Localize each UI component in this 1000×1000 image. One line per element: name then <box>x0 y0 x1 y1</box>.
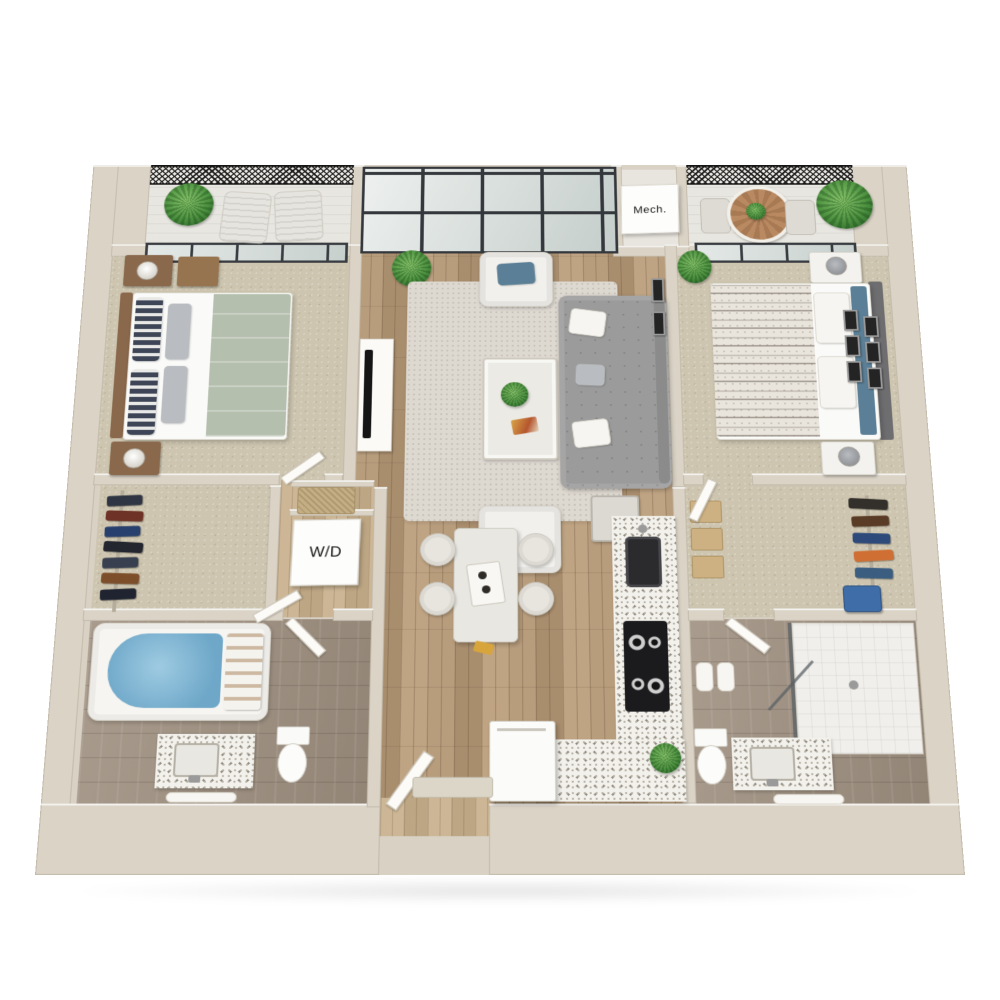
lounge-chair <box>274 189 324 242</box>
wall-art-frame <box>652 311 665 335</box>
mech-room-label: Mech. <box>633 203 666 215</box>
gallery-frame <box>843 310 859 331</box>
dining-stool <box>518 582 554 616</box>
hanging-garment <box>852 533 890 545</box>
living-room-window-wall <box>360 167 618 254</box>
gallery-frame <box>846 361 862 382</box>
storage-box <box>691 528 724 550</box>
blue-accent-pillow <box>496 262 535 286</box>
hanging-garment <box>103 541 144 553</box>
kitchen-faucet <box>638 525 648 534</box>
left-balcony-railing <box>150 165 354 185</box>
dining-stool <box>518 533 554 566</box>
left-bathroom-top-wall-b <box>333 608 373 620</box>
bed-boho-duvet <box>710 285 820 437</box>
entry-doormat <box>412 777 493 798</box>
washer-dryer-label: W/D <box>309 543 342 561</box>
hanging-garment <box>848 498 887 510</box>
hand-towel <box>773 794 845 804</box>
hanging-garment <box>102 557 138 569</box>
linen-basket <box>297 487 356 514</box>
sofa-pillow <box>571 418 612 448</box>
bedroom-plant <box>677 250 712 283</box>
bathtub-water <box>105 633 223 708</box>
vanity-sink <box>173 743 220 777</box>
right-bathroom-top-wall-a <box>688 608 725 620</box>
refrigerator-handle <box>497 728 546 731</box>
balcony-chair <box>784 200 816 235</box>
hanging-garment <box>105 510 143 521</box>
hanging-garment <box>100 588 136 600</box>
kitchen-sink <box>625 537 662 588</box>
lounge-chair <box>218 191 272 244</box>
sofa-pillow <box>568 308 607 338</box>
wall-art-frame <box>651 278 664 302</box>
hanging-garment <box>851 515 889 527</box>
suitcase <box>842 585 882 612</box>
table-lamp-gray <box>837 447 861 467</box>
gallery-frame <box>863 316 879 337</box>
towel-stack <box>223 633 263 709</box>
right-bedroom-bottom-wall-a <box>683 473 704 485</box>
dining-stool <box>420 533 456 566</box>
right-bedroom-bottom-wall-b <box>752 473 907 485</box>
hanging-garment <box>855 567 893 579</box>
gallery-frame <box>867 368 883 389</box>
bed-pillow-striped <box>132 297 164 361</box>
hanging-towel <box>695 662 713 691</box>
vanity-sink <box>749 747 796 781</box>
mech-room-door: Mech. <box>621 184 680 235</box>
kitchen-plant <box>649 743 681 773</box>
sofa-pillow <box>575 364 605 386</box>
floorplan-scene: Mech. <box>0 0 1000 1000</box>
hanging-garment <box>107 495 143 507</box>
bed-pillow <box>165 304 192 360</box>
bed-pillow <box>161 366 188 423</box>
hanging-garment <box>853 550 894 562</box>
gallery-frame <box>845 335 861 356</box>
bed-pillow-striped <box>127 369 159 435</box>
washer-dryer-unit: W/D <box>290 519 361 586</box>
dining-stool <box>419 582 456 616</box>
hand-towel <box>165 792 237 802</box>
vanity-faucet <box>188 775 200 783</box>
left-bedroom-bottom-wall-a <box>93 473 280 485</box>
mech-bottom-wall <box>613 246 690 257</box>
cup <box>478 571 487 579</box>
left-balcony-side-wall <box>111 165 151 253</box>
hanging-towel <box>717 662 736 691</box>
shower-drain <box>849 680 859 689</box>
right-balcony-railing <box>686 165 854 185</box>
vanity-faucet <box>766 779 778 787</box>
dining-tray <box>466 561 506 607</box>
gallery-frame <box>865 342 881 363</box>
hanging-garment <box>104 526 140 537</box>
hanging-garment <box>101 573 140 585</box>
refrigerator <box>489 721 556 802</box>
balcony-table-plant <box>746 203 766 220</box>
cooktop <box>623 621 670 712</box>
coffee-table-plant <box>501 382 529 407</box>
table-lamp-gray <box>825 257 848 276</box>
front-wall-right <box>489 804 965 875</box>
ground-shadow <box>60 878 940 904</box>
dresser <box>177 257 220 287</box>
cup <box>482 585 491 593</box>
storage-box <box>692 556 725 579</box>
floorplan: Mech. <box>35 165 965 875</box>
coffee-table <box>482 358 558 460</box>
shower <box>791 623 923 755</box>
left-bedroom-window <box>144 243 348 263</box>
bed-blanket <box>206 294 291 436</box>
wd-niche-top-wall <box>290 480 374 487</box>
front-wall-left <box>35 804 381 875</box>
